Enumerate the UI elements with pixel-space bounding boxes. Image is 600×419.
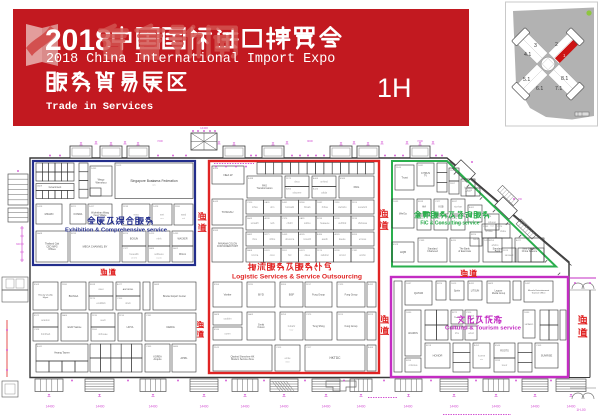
svg-text:2F73: 2F73 [286, 178, 292, 180]
svg-text:oaeo: oaeo [98, 288, 104, 291]
svg-text:2F35: 2F35 [92, 315, 98, 317]
svg-text:Exhibition & Comprehensive ser: Exhibition & Comprehensive service [65, 228, 167, 234]
svg-text:Mgmt: Mgmt [43, 296, 49, 299]
svg-text:B218: B218 [462, 181, 468, 183]
svg-text:Tourism Office: Tourism Office [532, 291, 547, 294]
svg-text:C356: C356 [117, 298, 123, 300]
svg-text:14400: 14400 [357, 405, 366, 409]
svg-text:rcrcrra: rcrcrra [251, 254, 259, 257]
svg-text:TV: TV [424, 175, 427, 178]
svg-text:Fung Group: Fung Group [312, 293, 325, 296]
svg-text:aautb: aautb [322, 238, 329, 241]
svg-text:sasd: sasd [181, 214, 187, 217]
svg-text:Sprite: Sprite [454, 289, 461, 292]
svg-text:14400: 14400 [96, 405, 105, 409]
svg-text:orrord: orrord [339, 254, 346, 257]
svg-text:htrr: htrr [288, 254, 292, 257]
svg-text:0A91: 0A91 [300, 217, 306, 220]
svg-text:ANAROS: ANAROS [408, 332, 418, 335]
svg-text:14400: 14400 [404, 405, 413, 409]
svg-text:7200: 7200 [417, 139, 423, 143]
svg-text:A188: A188 [248, 177, 254, 180]
svg-text:E593: E593 [213, 230, 219, 232]
svg-text:14400: 14400 [149, 405, 158, 409]
svg-text:HKTDC: HKTDC [330, 356, 342, 360]
svg-text:14400: 14400 [531, 405, 540, 409]
svg-text:tuuess: tuuess [478, 355, 486, 358]
svg-text:Transformation: Transformation [257, 187, 274, 190]
svg-text:0A63: 0A63 [248, 313, 254, 316]
svg-text:B293: B293 [406, 360, 412, 362]
svg-text:0A29: 0A29 [37, 185, 43, 188]
svg-text:2: 2 [555, 42, 558, 48]
svg-text:B223: B223 [368, 314, 374, 316]
svg-text:tcssoth: tcssoth [303, 238, 311, 241]
svg-text:AIA: AIA [422, 205, 426, 208]
svg-text:tasr: tasr [290, 329, 294, 332]
svg-text:E555: E555 [213, 168, 219, 170]
svg-text:A161: A161 [469, 206, 475, 209]
svg-text:0A12: 0A12 [173, 247, 179, 250]
svg-text:enr: enr [160, 217, 163, 220]
svg-text:sert: sert [160, 214, 164, 217]
svg-text:1H33: 1H33 [393, 201, 399, 203]
svg-text:ocnbn: ocnbn [359, 254, 366, 257]
svg-text:2F37: 2F37 [306, 284, 312, 286]
svg-text:buhahr: buhahr [288, 325, 296, 328]
svg-text:B221: B221 [71, 206, 77, 208]
svg-text:B264: B264 [281, 284, 287, 286]
svg-text:B260: B260 [286, 189, 292, 191]
svg-text:TOSOAU: TOSOAU [222, 210, 234, 214]
svg-text:Logistic Services & Service Ou: Logistic Services & Service Outsourcing [232, 275, 362, 281]
svg-text:B220: B220 [123, 233, 129, 235]
svg-text:NEA W: NEA W [223, 173, 232, 177]
svg-text:ssna: ssna [133, 214, 139, 217]
svg-text:1H97: 1H97 [406, 283, 412, 285]
svg-text:0A48: 0A48 [37, 232, 43, 235]
svg-text:14400: 14400 [280, 405, 289, 409]
svg-text:MEGA CHANNEL BY: MEGA CHANNEL BY [83, 244, 108, 248]
svg-text:A143: A143 [213, 200, 219, 203]
svg-text:daede: daede [339, 238, 346, 241]
svg-text:0A26: 0A26 [265, 201, 271, 204]
svg-text:enddbsb: enddbsb [96, 302, 106, 305]
svg-text:QATAR: QATAR [414, 291, 423, 295]
svg-text:Media Group: Media Group [492, 292, 506, 295]
svg-text:B255: B255 [489, 240, 495, 242]
svg-text:BSF: BSF [289, 292, 295, 296]
svg-text:2F87: 2F87 [450, 183, 456, 185]
svg-text:BILINGA: BILINGA [69, 295, 79, 298]
svg-text:1H19: 1H19 [116, 165, 122, 167]
svg-text:D417: D417 [89, 206, 95, 208]
svg-text:C317: C317 [306, 347, 312, 349]
svg-text:C375: C375 [306, 314, 312, 316]
svg-text:D428: D428 [153, 206, 159, 208]
svg-text:4.1: 4.1 [524, 52, 531, 58]
svg-text:Singapore Business Federation: Singapore Business Federation [130, 179, 177, 183]
svg-text:2018 China International Impor: 2018 China International Import Expo [46, 52, 335, 67]
svg-text:0A28: 0A28 [214, 313, 220, 316]
svg-text:2F60: 2F60 [92, 329, 98, 331]
svg-text:bhsab: bhsab [304, 206, 311, 209]
svg-text:2F80: 2F80 [175, 206, 181, 208]
svg-text:7.1: 7.1 [555, 86, 562, 92]
svg-text:mot: mot [490, 225, 494, 228]
svg-text:C377: C377 [123, 248, 129, 250]
svg-text:srtt: srtt [182, 217, 185, 220]
svg-text:Hwang Tauren: Hwang Tauren [54, 351, 70, 354]
svg-text:Vanke: Vanke [224, 292, 232, 296]
svg-text:6.1: 6.1 [536, 86, 543, 92]
svg-text:A141: A141 [37, 345, 43, 348]
svg-text:sobbeou: sobbeou [154, 253, 164, 256]
svg-text:B233: B233 [71, 233, 77, 235]
svg-text:0A34: 0A34 [173, 345, 179, 348]
svg-text:E550: E550 [214, 284, 220, 286]
svg-text:nthbu: nthbu [269, 238, 276, 241]
svg-text:eaoto: eaoto [156, 257, 162, 260]
svg-text:EGAT Salone: EGAT Salone [68, 326, 83, 329]
svg-text:HQB: HQB [400, 250, 406, 254]
svg-text:ROcco: ROcco [179, 254, 187, 256]
svg-text:B285: B285 [352, 234, 358, 236]
svg-text:450: 450 [518, 198, 523, 201]
svg-text:A191: A191 [469, 282, 475, 285]
svg-text:2F80: 2F80 [62, 284, 68, 286]
svg-text:rabohsr: rabohsr [321, 254, 329, 257]
svg-text:sdueao: sdueao [488, 221, 497, 224]
svg-text:B219: B219 [426, 345, 432, 347]
svg-text:erncau: erncau [359, 238, 367, 241]
svg-text:MIGRN: MIGRN [45, 212, 54, 216]
svg-text:1H90: 1H90 [524, 312, 530, 314]
svg-text:CONTAINER PORT: CONTAINER PORT [217, 245, 239, 248]
svg-text:A143: A143 [467, 189, 473, 192]
svg-text:obconre: obconre [293, 191, 302, 194]
svg-text:D415: D415 [149, 233, 155, 235]
svg-text:APRIL: APRIL [181, 357, 189, 360]
svg-text:2F38: 2F38 [123, 206, 129, 208]
svg-text:B272: B272 [452, 312, 458, 314]
svg-text:B249: B249 [418, 201, 424, 203]
svg-text:codubn: codubn [224, 318, 233, 321]
svg-text:ucradrh: ucradrh [251, 222, 260, 225]
svg-text:0A68: 0A68 [247, 249, 253, 252]
svg-text:KGB: KGB [438, 205, 443, 208]
svg-text:mtre: mtre [285, 361, 290, 364]
svg-text:2F81: 2F81 [282, 250, 288, 252]
svg-text:0A39: 0A39 [154, 283, 160, 286]
svg-text:2F43: 2F43 [214, 347, 220, 349]
svg-text:D461: D461 [282, 202, 288, 204]
svg-text:2F74: 2F74 [317, 250, 323, 252]
svg-text:14400: 14400 [567, 405, 576, 409]
svg-text:huoesbb: huoesbb [129, 253, 139, 256]
svg-text:botnadb: botnadb [285, 206, 294, 209]
svg-text:2F24: 2F24 [352, 202, 358, 204]
svg-text:C310: C310 [247, 202, 253, 204]
svg-text:2F95: 2F95 [248, 284, 254, 286]
svg-text:Acquire: Acquire [153, 358, 162, 361]
svg-text:14400: 14400 [241, 405, 250, 409]
svg-text:D418: D418 [37, 206, 43, 208]
svg-text:Government: Government [49, 186, 62, 189]
svg-text:D499: D499 [484, 240, 490, 242]
svg-text:ddea: ddea [305, 254, 311, 257]
svg-text:D495: D495 [173, 233, 179, 235]
svg-text:rbhsa: rbhsa [322, 206, 329, 209]
svg-text:edud: edud [468, 332, 474, 335]
svg-text:hrhdae: hrhdae [485, 230, 493, 233]
svg-text:decu: decu [294, 180, 300, 183]
svg-text:D493: D493 [91, 168, 97, 170]
svg-text:14400: 14400 [492, 405, 501, 409]
svg-text:C381: C381 [352, 250, 358, 252]
svg-text:1H15: 1H15 [451, 283, 457, 285]
svg-text:dhdossa: dhdossa [358, 222, 368, 225]
svg-text:nrhss: nrhss [252, 206, 259, 209]
svg-text:A165: A165 [313, 177, 319, 180]
svg-text:E523: E523 [300, 250, 306, 252]
svg-text:chdrrr: chdrrr [287, 222, 293, 225]
svg-text:2F98: 2F98 [495, 360, 501, 362]
svg-text:Modern Service Zone: Modern Service Zone [231, 358, 255, 361]
svg-text:HONOR: HONOR [433, 353, 443, 357]
svg-text:E569: E569 [34, 284, 40, 286]
svg-text:B271: B271 [265, 234, 271, 236]
svg-text:Cultural & Tourism service: Cultural & Tourism service [445, 326, 521, 332]
svg-text:tbnu: tbnu [252, 238, 257, 241]
svg-text:retb: retb [270, 222, 275, 225]
svg-text:SUNRISE: SUNRISE [541, 353, 553, 357]
svg-text:CEDIA: CEDIA [166, 325, 175, 329]
svg-text:14400: 14400 [46, 405, 55, 409]
svg-text:Wenzhou: Wenzhou [96, 180, 107, 184]
svg-text:1H82: 1H82 [317, 202, 323, 204]
svg-text:Fung Group: Fung Group [345, 293, 358, 296]
svg-text:KOSIRA: KOSIRA [74, 213, 83, 216]
svg-text:A192: A192 [368, 283, 374, 286]
svg-text:B220: B220 [471, 234, 477, 236]
svg-text:C365: C365 [146, 346, 152, 348]
svg-text:2F74: 2F74 [90, 298, 96, 300]
svg-text:LIONCO: LIONCO [525, 324, 534, 326]
svg-text:0A43: 0A43 [247, 217, 253, 220]
svg-text:B298: B298 [335, 250, 341, 252]
svg-text:Tung Shing: Tung Shing [312, 325, 325, 328]
svg-text:Offices: Offices [48, 248, 56, 251]
svg-text:A198: A198 [265, 217, 271, 220]
svg-text:ubuccca: ubuccca [285, 238, 295, 241]
svg-text:streb: streb [125, 302, 131, 305]
svg-text:2F16: 2F16 [119, 315, 125, 317]
svg-text:2F28: 2F28 [503, 250, 509, 252]
svg-text:1: 1 [563, 53, 566, 58]
svg-text:ASPIRING: ASPIRING [123, 288, 134, 291]
svg-text:rshh: rshh [157, 238, 162, 241]
svg-text:C315: C315 [276, 347, 282, 349]
svg-text:2F43: 2F43 [450, 170, 456, 172]
svg-text:1H91: 1H91 [418, 165, 424, 167]
svg-text:8.1: 8.1 [561, 76, 568, 82]
svg-text:FIC & Consulting service: FIC & Consulting service [420, 221, 479, 227]
svg-text:BOSUN: BOSUN [130, 238, 139, 240]
svg-text:D467: D467 [525, 283, 531, 285]
svg-text:BYD: BYD [258, 292, 264, 296]
svg-text:1H43: 1H43 [483, 226, 489, 228]
svg-text:B249: B249 [90, 284, 96, 286]
svg-text:Fung Group: Fung Group [345, 325, 358, 328]
svg-text:huaaeoe: huaaeoe [320, 222, 330, 225]
svg-text:7200: 7200 [157, 139, 163, 143]
svg-text:trbu: trbu [455, 332, 460, 335]
svg-text:14400: 14400 [200, 405, 209, 409]
svg-text:1H90: 1H90 [406, 312, 412, 314]
svg-text:C328: C328 [34, 329, 40, 331]
svg-text:Trust: Trust [401, 175, 407, 179]
svg-text:B255: B255 [281, 314, 287, 316]
svg-text:9000: 9000 [307, 139, 313, 143]
svg-text:A165: A165 [335, 233, 341, 236]
svg-text:C374: C374 [497, 226, 503, 228]
svg-text:B220: B220 [437, 283, 443, 285]
svg-text:tusnh: tusnh [473, 238, 480, 241]
svg-text:300: 300 [16, 243, 21, 246]
svg-text:1H: 1H [377, 73, 412, 103]
svg-text:sddnu: sddnu [304, 222, 311, 225]
svg-text:C310: C310 [466, 312, 472, 314]
svg-text:ROOTS: ROOTS [500, 349, 509, 352]
svg-text:drabe: drabe [500, 230, 507, 233]
svg-text:cunrn: cunrn [225, 333, 232, 336]
svg-text:otrn: otrn [270, 206, 275, 209]
svg-text:Brazier Export Center: Brazier Export Center [163, 295, 186, 298]
svg-text:D469: D469 [282, 234, 288, 236]
svg-text:A164: A164 [368, 346, 374, 349]
svg-text:2F24: 2F24 [338, 314, 344, 316]
svg-text:0A86: 0A86 [149, 247, 155, 250]
svg-text:A180: A180 [317, 233, 323, 236]
svg-text:C325: C325 [338, 284, 344, 286]
svg-text:E544: E544 [495, 345, 501, 347]
svg-text:rtcehae: rtcehae [454, 206, 463, 209]
svg-text:ouhhbd: ouhhbd [338, 222, 347, 225]
svg-text:Trade in Services: Trade in Services [46, 101, 153, 113]
svg-text:A152: A152 [474, 344, 480, 347]
svg-text:B235: B235 [317, 218, 323, 220]
svg-text:sbhneae: sbhneae [98, 333, 108, 336]
svg-text:WeGo: WeGo [399, 211, 407, 215]
svg-text:ctehsho: ctehsho [338, 206, 347, 209]
svg-text:hnhbhah: hnhbhah [41, 333, 51, 336]
svg-text:of East Asia: of East Asia [458, 250, 471, 253]
svg-text:B247: B247 [452, 201, 458, 203]
svg-text:E533: E533 [265, 250, 271, 252]
svg-text:A177: A177 [117, 283, 123, 286]
svg-text:Bank: Bank [495, 250, 501, 253]
svg-text:smrmt: smrmt [131, 257, 137, 260]
svg-text:C369: C369 [536, 345, 542, 347]
svg-text:ccco: ccco [270, 254, 276, 257]
svg-text:ata: ata [480, 358, 484, 361]
svg-text:0A23: 0A23 [488, 282, 494, 285]
svg-text:A185: A185 [300, 233, 306, 236]
svg-text:B266: B266 [300, 202, 306, 204]
svg-text:14400: 14400 [450, 405, 459, 409]
svg-text:ecnte: ecnte [285, 357, 292, 360]
svg-text:C377: C377 [435, 201, 441, 203]
svg-text:A120: A120 [313, 188, 319, 191]
svg-text:3: 3 [534, 43, 537, 49]
svg-text:2F44: 2F44 [396, 167, 402, 169]
svg-text:2F39: 2F39 [352, 218, 358, 220]
svg-text:aes: aes [152, 184, 156, 186]
svg-text:E572: E572 [34, 315, 40, 317]
svg-text:Forest: Forest [258, 326, 265, 329]
svg-text:E585: E585 [340, 178, 346, 180]
svg-text:A177: A177 [516, 239, 522, 242]
svg-text:E530: E530 [214, 329, 220, 331]
svg-text:2F36: 2F36 [335, 202, 341, 204]
svg-text:1H-00: 1H-00 [576, 408, 585, 412]
svg-text:LIDYA: LIDYA [127, 326, 134, 329]
svg-text:Chartered: Chartered [427, 250, 438, 253]
svg-text:onbotea: onbotea [409, 364, 418, 367]
svg-text:B298: B298 [335, 218, 341, 220]
svg-text:LITSUN: LITSUN [471, 289, 480, 292]
svg-text:E529: E529 [393, 244, 399, 246]
svg-text:acaoton: acaoton [41, 319, 50, 322]
svg-text:PAG: PAG [354, 185, 360, 189]
svg-text:5.1: 5.1 [523, 77, 530, 83]
svg-text:toeur: toeur [502, 364, 508, 367]
svg-text:oooebcb: oooebcb [358, 206, 368, 209]
svg-text:C376: C376 [282, 218, 288, 220]
svg-text:unhtnd: unhtnd [320, 180, 328, 183]
svg-text:0A92: 0A92 [247, 233, 253, 236]
svg-text:China Science: China Science [522, 250, 538, 253]
svg-text:WACKER: WACKER [178, 237, 188, 240]
svg-text:0A60: 0A60 [62, 314, 68, 317]
svg-text:A115: A115 [451, 239, 457, 242]
svg-text:14400: 14400 [322, 405, 331, 409]
svg-text:cdtda: cdtda [321, 191, 328, 194]
svg-text:ueeh: ueeh [100, 319, 106, 322]
svg-text:C389: C389 [419, 240, 425, 242]
svg-text:C391: C391 [146, 315, 152, 317]
